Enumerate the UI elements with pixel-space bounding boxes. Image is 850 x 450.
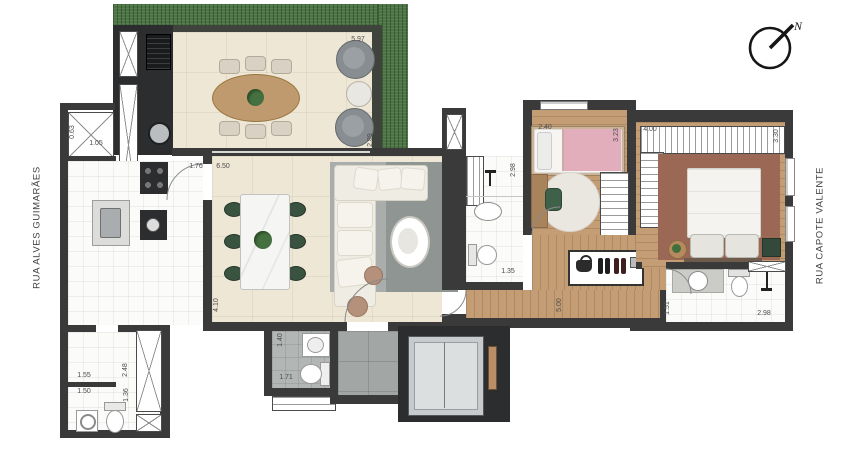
dimension-label: 1.36 [123,383,131,407]
dimension-label: 1.51 [664,296,672,320]
dimension-label: 2.89 [367,128,375,152]
dimension-label: 4.00 [638,126,662,134]
dimension-label: 1.40 [277,328,285,352]
north-label: N [793,19,803,33]
dimension-label: 2.40 [533,124,557,132]
dimension-label: 5.97 [346,36,370,44]
dimension-label: 2.48 [122,358,130,382]
dimension-label: 0.63 [69,120,77,144]
dimension-label: 1.71 [274,374,298,382]
dimension-label: 2.98 [752,310,776,318]
north-compass-icon: N [738,14,810,86]
street-label-left: RUA ALVES GUIMARÃES [32,143,43,313]
dimension-label: 1.50 [72,388,96,396]
dimension-label: 1.05 [84,140,108,148]
dimension-label: 1.55 [72,372,96,380]
dimension-label: 3.23 [613,123,621,147]
dimension-label: 1.76 [184,163,208,171]
dimension-label: 4.10 [213,293,221,317]
street-label-right: RUA CAPOTE VALENTE [815,141,826,311]
dimension-label: 1.35 [496,268,520,276]
dimension-label: 3.30 [773,124,781,148]
floor-plan-canvas: 5.97 2.89 0.63 1.05 1.76 6.50 4.10 1.55 … [0,0,850,450]
dimension-label: 6.50 [211,163,235,171]
dimension-label: 2.98 [510,158,518,182]
dimension-label: 5.00 [556,293,564,317]
